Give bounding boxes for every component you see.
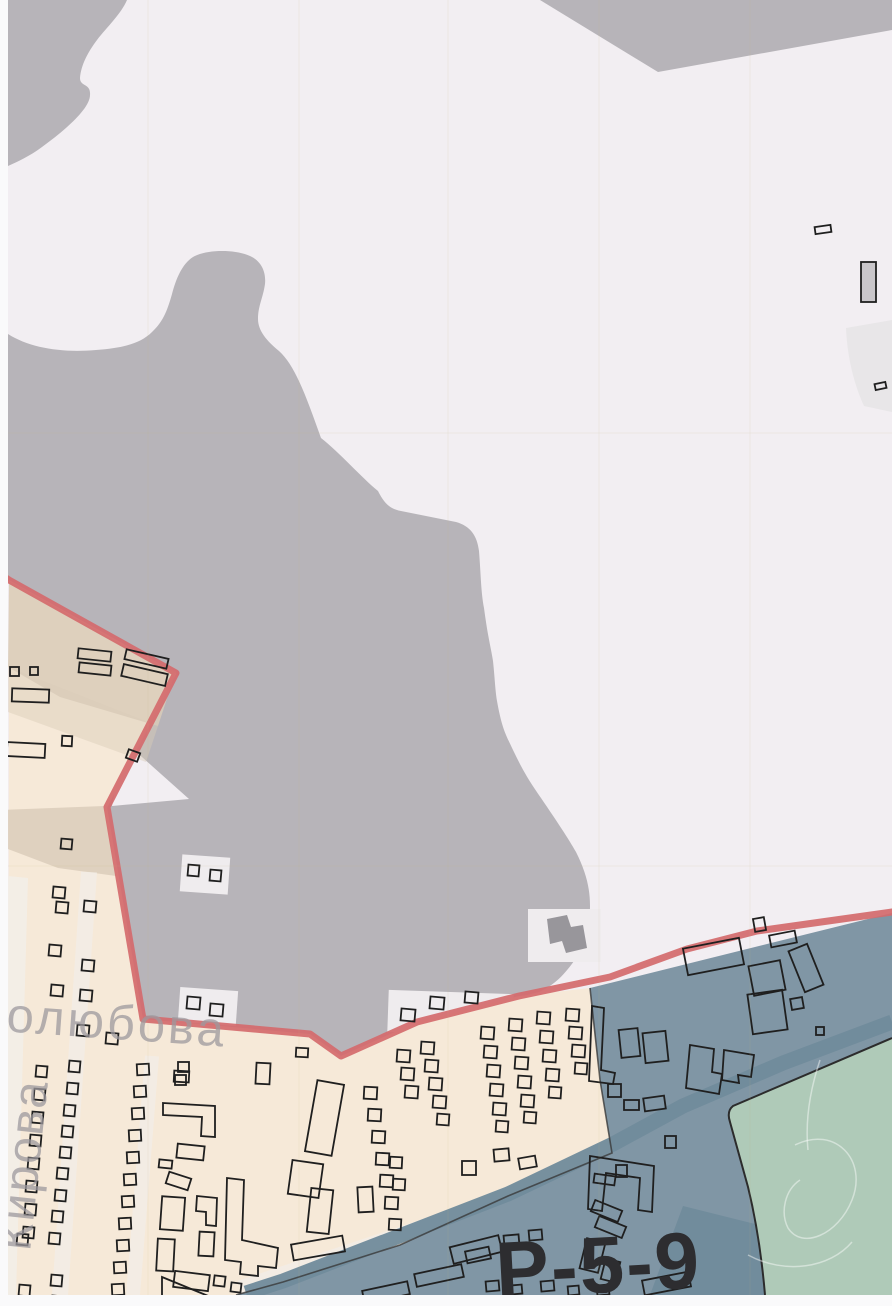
map-viewport: голюбоваКироваР-5-9 (0, 0, 892, 1306)
scan-margin-left (0, 0, 8, 1306)
zone-code-label: Р-5-9 (493, 1215, 703, 1306)
scan-margin-bottom (0, 1295, 892, 1306)
zoning-map-canvas: голюбоваКироваР-5-9 (0, 0, 892, 1306)
building-footprint-filled (861, 262, 876, 302)
